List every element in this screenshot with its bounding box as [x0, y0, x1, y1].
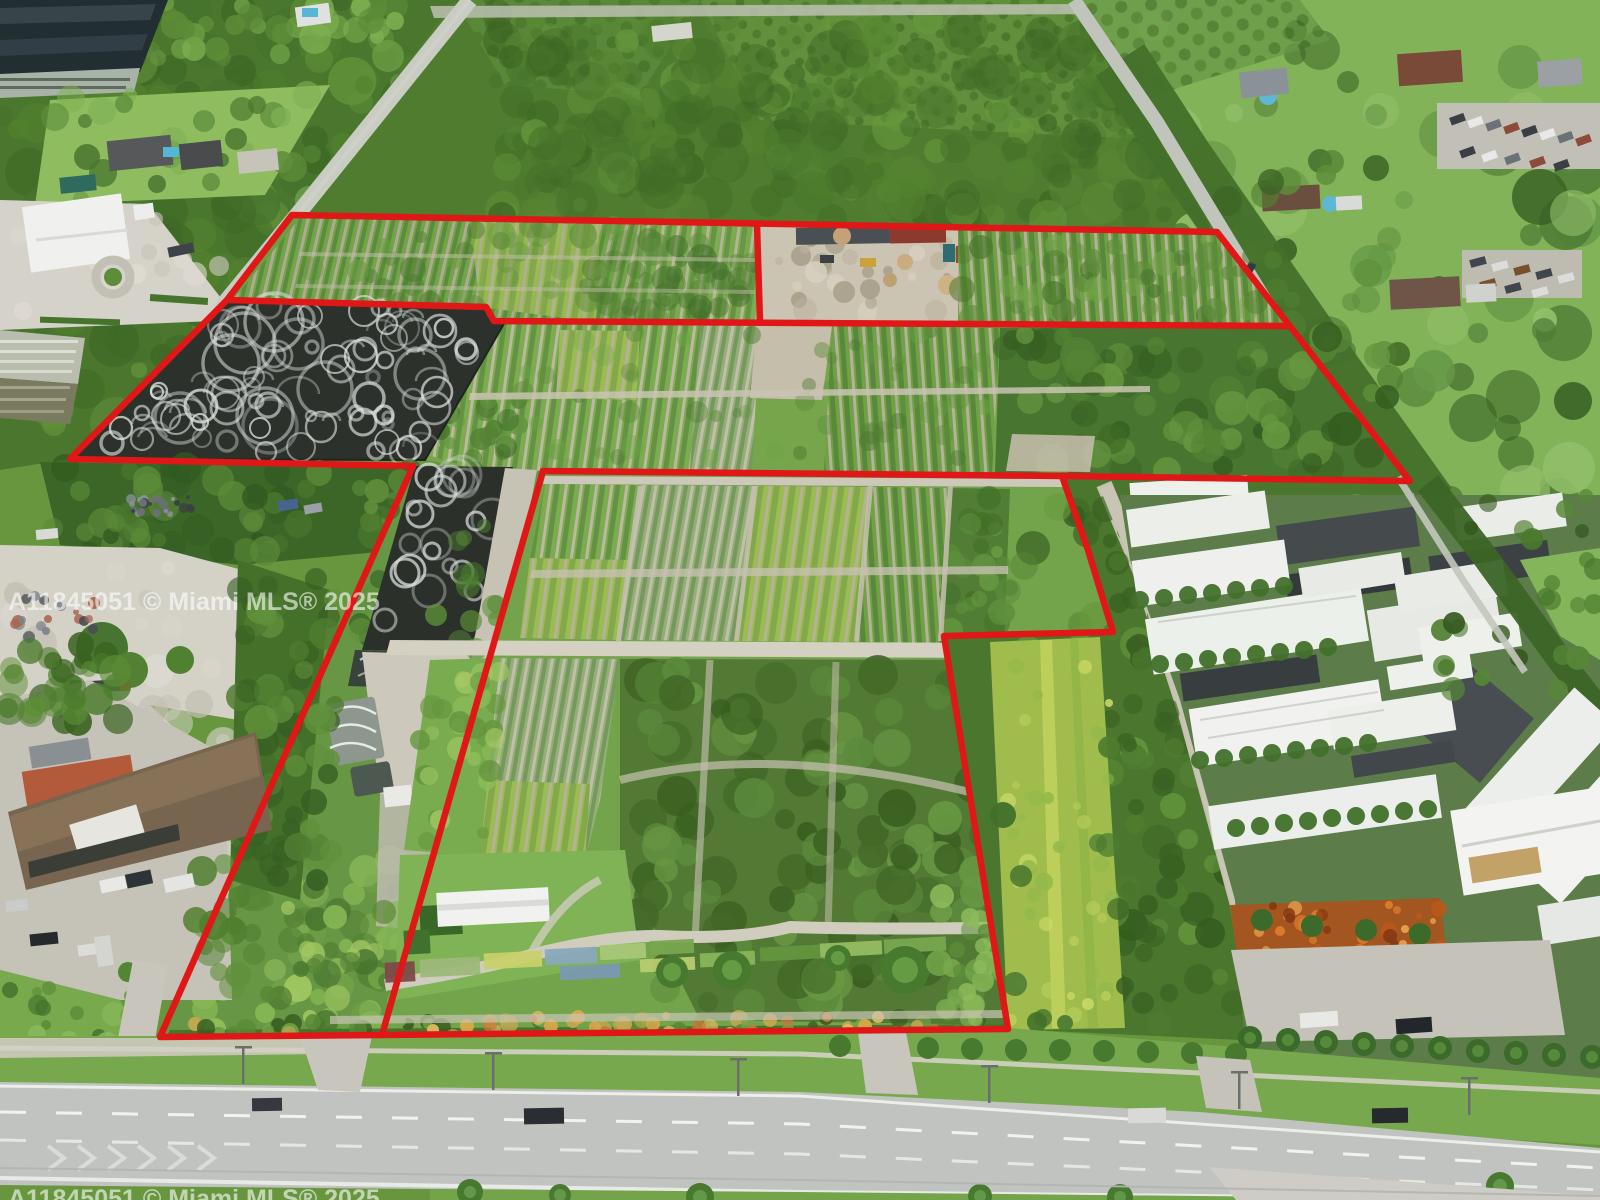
svg-text:A11845051 © Miami MLS® 2025: A11845051 © Miami MLS® 2025: [8, 1185, 380, 1200]
svg-text:A11845051 © Miami MLS® 2025: A11845051 © Miami MLS® 2025: [8, 588, 380, 616]
